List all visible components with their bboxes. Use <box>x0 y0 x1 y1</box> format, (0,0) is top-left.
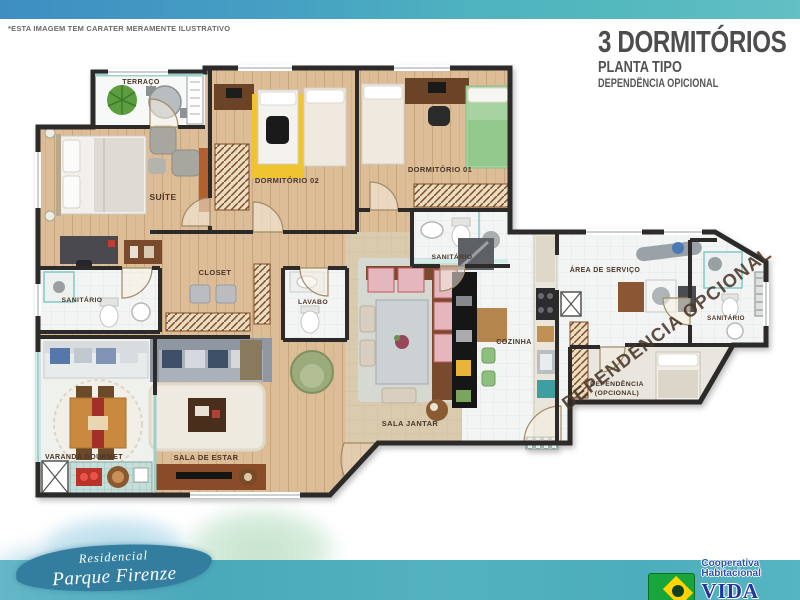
flag-icon <box>648 573 695 600</box>
floorplan: TERRAÇO SUÍTE DORMITÓRIO 02 DORMITÓRIO 0… <box>0 0 800 600</box>
closet-rack <box>254 264 270 324</box>
room-label-cozinha: COZINHA <box>496 337 532 346</box>
room-label-dorm01: DORMITÓRIO 01 <box>408 165 472 174</box>
room-label-sanitario-dep: SANITÁRIO <box>707 315 745 322</box>
room-label-dependencia-2: (OPCIONAL) <box>595 390 639 397</box>
suite-armchair <box>172 150 200 176</box>
coop-name: VIDA NOVA <box>701 581 800 600</box>
coop-tagline: Cooperativa Habitacional <box>701 559 800 579</box>
dining-side-table <box>426 399 448 421</box>
suite-armchair <box>150 126 176 154</box>
room-label-terraco: TERRAÇO <box>122 79 160 86</box>
room-label-sala-estar: SALA DE ESTAR <box>174 453 239 462</box>
spec-sign <box>187 76 203 124</box>
closet-rack <box>166 313 250 331</box>
cooperative-logo: Cooperativa Habitacional VIDA NOVA <box>648 559 800 600</box>
room-label-area-servico: ÁREA DE SERVIÇO <box>570 265 641 274</box>
room-label-sanitario-suite: SANITÁRIO <box>62 295 103 304</box>
cooperative-text: Cooperativa Habitacional VIDA NOVA <box>701 559 800 600</box>
flag-globe-icon <box>670 583 686 599</box>
room-label-suite: SUÍTE <box>149 192 176 202</box>
room-label-varanda: VARANDA GOURMET <box>45 454 123 461</box>
kitchen-stove <box>536 288 555 320</box>
room-label-lavabo: LAVABO <box>298 299 328 306</box>
room-label-sanitario-social: SANITÁRIO <box>432 252 473 261</box>
room-label-closet: CLOSET <box>199 268 232 277</box>
varanda-furniture <box>42 342 152 493</box>
dorm01-wardrobe <box>414 184 508 207</box>
room-label-dorm02: DORMITÓRIO 02 <box>255 176 319 185</box>
poster: *ESTA IMAGEM TEM CARATER MERAMENTE ILUST… <box>0 0 800 600</box>
dorm02-wardrobe <box>215 144 249 210</box>
room-label-sala-jantar: SALA JANTAR <box>382 419 439 428</box>
